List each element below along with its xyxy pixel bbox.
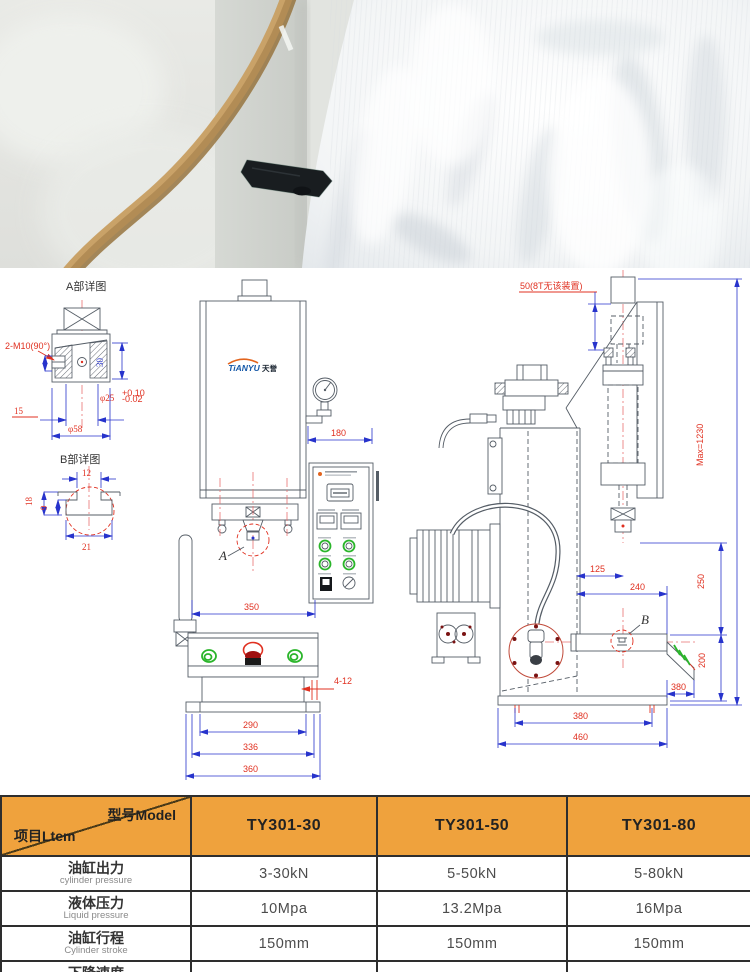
- detail-a-dim30: 30: [95, 358, 105, 368]
- product-page: { "colors": { "table_header_orange": "#e…: [0, 0, 750, 972]
- detail-b-title: B部详图: [60, 452, 100, 466]
- table-row: 油缸出力 cylinder pressure 3-30kN 5-50kN 5-8…: [1, 856, 750, 891]
- side-dim-380r: 380: [671, 682, 686, 692]
- pressure-gauge: [306, 378, 337, 423]
- cell-value: 10Mpa: [261, 901, 308, 917]
- cell-value: 5-80kN: [634, 866, 684, 882]
- front-dim-350: 350: [244, 602, 259, 612]
- detail-b-dim21: 21: [82, 542, 91, 552]
- front-view-drawing: TiANYU 天誉 180: [174, 280, 379, 780]
- product-photo: [0, 0, 750, 268]
- detail-a-thread: 2-M10(90°): [5, 341, 50, 351]
- cell-value: 150mm: [447, 936, 498, 952]
- side-dim-125: 125: [590, 564, 605, 574]
- detail-a-callout: A: [218, 548, 227, 563]
- logo-cn: 天誉: [262, 363, 277, 373]
- cell-value: 16Mpa: [636, 901, 683, 917]
- pillar: [215, 0, 307, 268]
- logo-en: TiANYU: [228, 363, 260, 373]
- table-corner-cell: 型号Model 项目Ltem: [1, 796, 191, 856]
- front-dim-290: 290: [243, 720, 258, 730]
- detail-a-dim15: 15: [14, 406, 24, 416]
- detail-a-bore: φ25: [100, 393, 115, 403]
- motor: [410, 524, 500, 663]
- side-dim-240: 240: [630, 582, 645, 592]
- detail-b-dim12: 12: [82, 468, 91, 478]
- row-label-en: Cylinder stroke: [2, 946, 190, 956]
- detail-b-drawing: B部详图 12 18 9 21: [24, 452, 120, 552]
- round-flange: [509, 624, 563, 678]
- row-label-cn: 油缸出力: [2, 861, 190, 876]
- front-dim-336: 336: [243, 742, 258, 752]
- front-dim-180: 180: [331, 428, 346, 438]
- detail-a-drawing: A部详图 2-M10(90°) 30 15 φ25 +0.10 -0.02 φ5…: [5, 279, 145, 440]
- side-dim-250: 250: [696, 574, 706, 589]
- front-dim-360: 360: [243, 764, 258, 774]
- cell-value: 5-50kN: [447, 866, 497, 882]
- table-row: 液体压力 Liquid pressure 10Mpa 13.2Mpa 16Mpa: [1, 891, 750, 926]
- table-row: 油缸行程 Cylinder stroke 150mm 150mm 150mm: [1, 926, 750, 961]
- control-panel: [309, 463, 379, 603]
- model-col-1: TY301-30: [191, 796, 377, 856]
- model-col-2: TY301-50: [377, 796, 567, 856]
- table-row-partial: 下降速度: [1, 961, 750, 972]
- front-dim-holes: 4-12: [334, 676, 352, 686]
- photo-illustration: [0, 0, 750, 268]
- side-view-drawing: 50(8T无该装置): [410, 270, 742, 748]
- row-label-cn: 下降速度: [2, 966, 190, 972]
- chute: [667, 642, 695, 680]
- cad-sheet: .p{stroke:#555d66;stroke-width:0.9;fill:…: [0, 268, 750, 795]
- detail-b-dim18: 18: [24, 497, 34, 507]
- model-col-3: TY301-80: [567, 796, 750, 856]
- cell-value: 150mm: [634, 936, 685, 952]
- detail-a-tol-minus: -0.02: [122, 394, 143, 404]
- table-header-row: 型号Model 项目Ltem TY301-30 TY301-50 TY301-8…: [1, 796, 750, 856]
- row-label-en: Liquid pressure: [2, 911, 190, 921]
- detail-b-dim9: 9: [39, 505, 49, 510]
- row-label-en: cylinder pressure: [2, 876, 190, 886]
- item-label: 项目Ltem: [14, 826, 75, 846]
- valve-assembly: [439, 365, 568, 448]
- side-dim-460: 460: [573, 732, 588, 742]
- model-label: 型号Model: [108, 805, 176, 825]
- detail-b-callout: B: [641, 612, 649, 627]
- cell-value: 3-30kN: [259, 866, 309, 882]
- side-dim-max: Max=1230: [695, 424, 705, 466]
- side-note-50: 50(8T无该装置): [520, 280, 583, 291]
- row-label-cn: 油缸行程: [2, 931, 190, 946]
- spec-table-section: 型号Model 项目Ltem TY301-30 TY301-50 TY301-8…: [0, 795, 750, 972]
- cell-value: 150mm: [259, 936, 310, 952]
- technical-drawing: .p{stroke:#555d66;stroke-width:0.9;fill:…: [0, 268, 750, 795]
- side-dim-200: 200: [697, 653, 707, 668]
- detail-a-title: A部详图: [66, 279, 106, 293]
- cell-value: 13.2Mpa: [442, 901, 502, 917]
- spec-table: 型号Model 项目Ltem TY301-30 TY301-50 TY301-8…: [0, 795, 750, 972]
- hand-lever: [179, 535, 192, 623]
- side-dim-380b: 380: [573, 711, 588, 721]
- row-label-cn: 液体压力: [2, 896, 190, 911]
- detail-a-outer: φ58: [68, 424, 83, 434]
